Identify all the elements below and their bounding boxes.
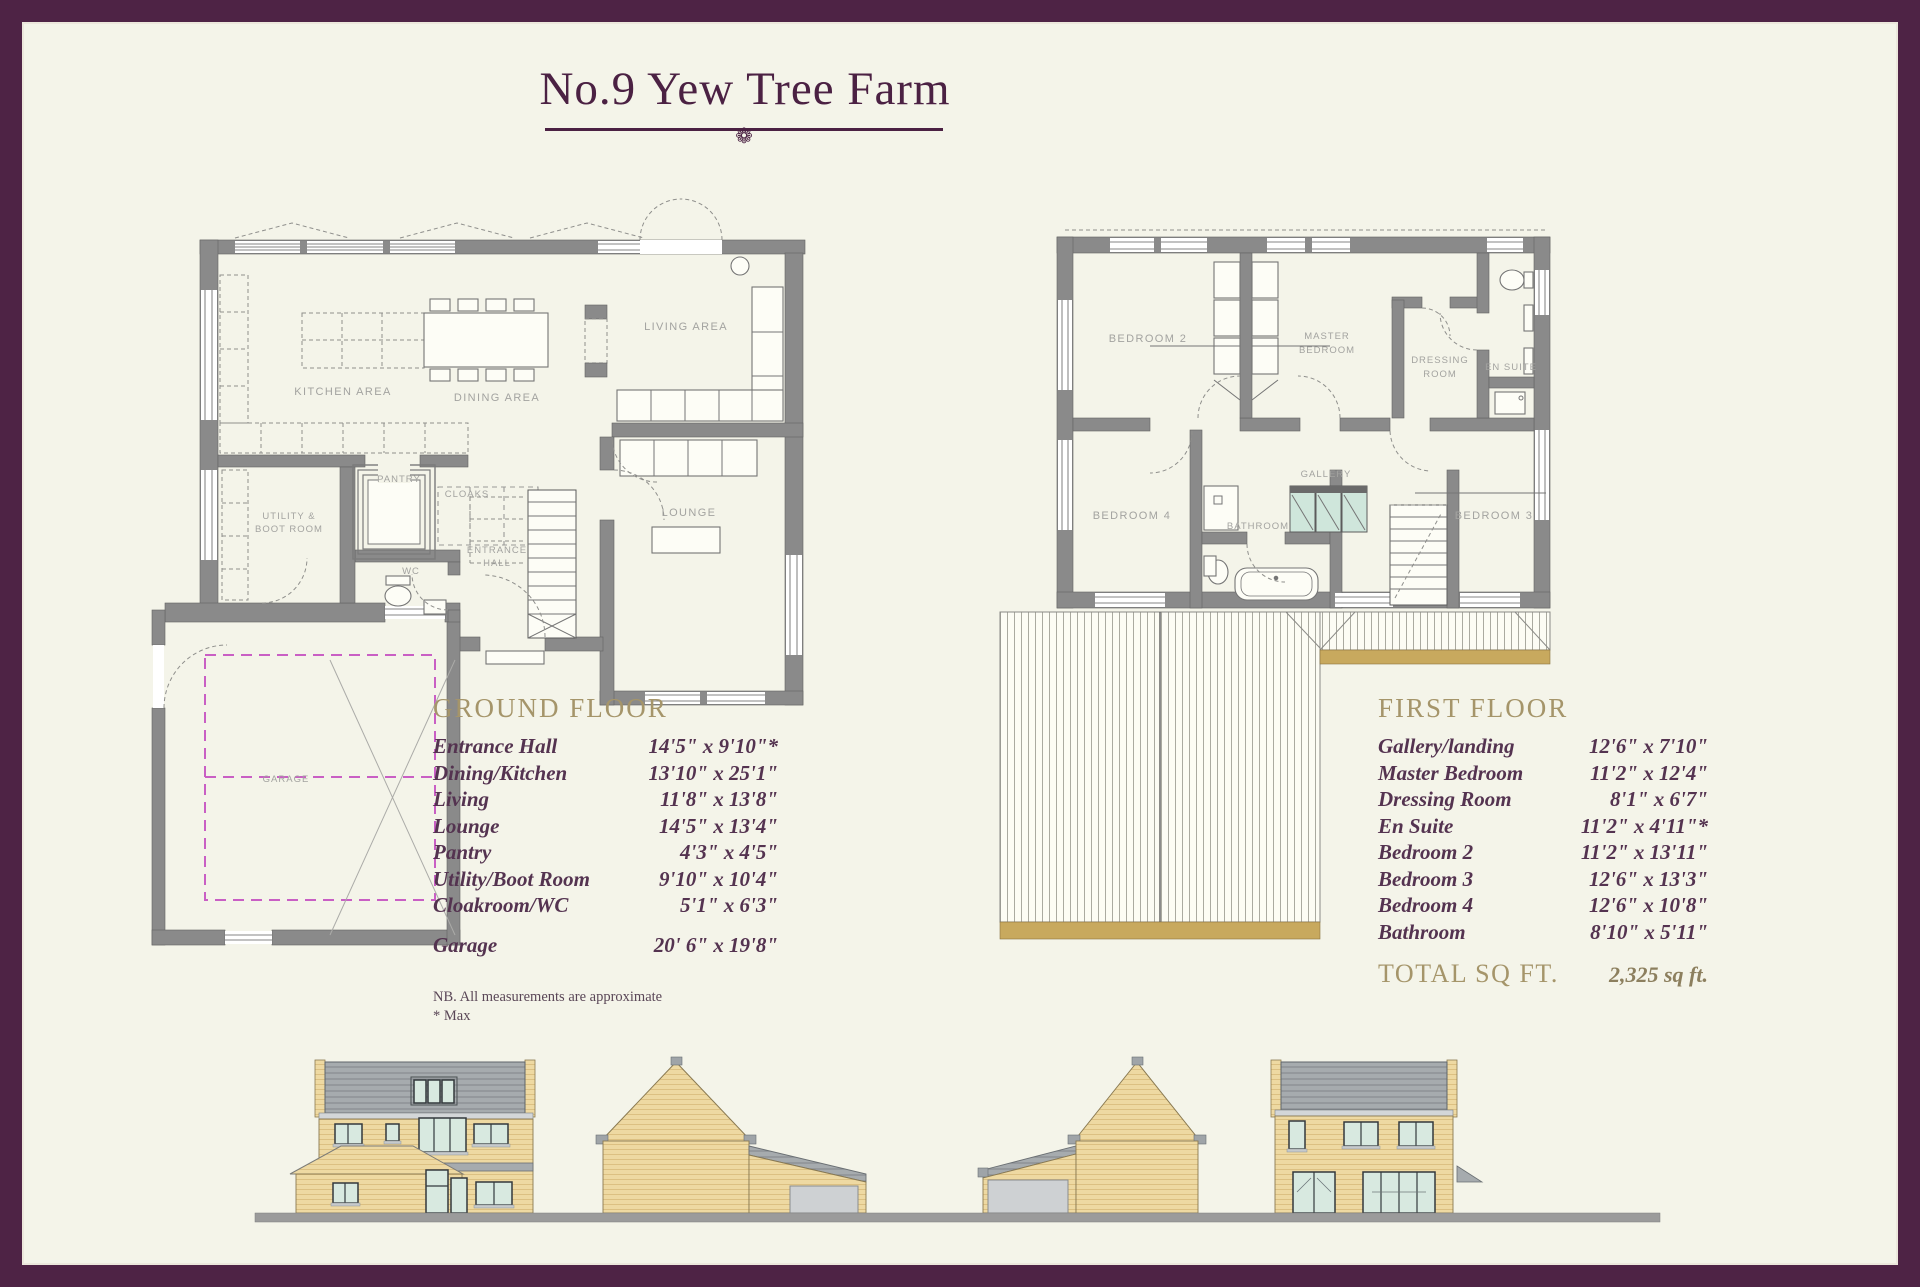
label-bedroom2: BEDROOM 2 xyxy=(1109,333,1188,345)
ground-line xyxy=(255,1213,1660,1222)
ground-floor-heading: GROUND FLOOR xyxy=(433,693,778,724)
first-walls xyxy=(1057,237,1550,608)
garage-row: Garage20' 6" x 19'8" xyxy=(433,932,778,959)
label-garage: GARAGE xyxy=(263,774,310,785)
room-row: Bedroom 211'2" x 13'11" xyxy=(1378,839,1708,866)
label-dressing-room: DRESSING xyxy=(1411,355,1469,366)
label-en-suite: EN SUITE xyxy=(1485,362,1537,373)
label-kitchen-area: KITCHEN AREA xyxy=(294,386,392,398)
bathroom-fixtures xyxy=(1204,544,1318,600)
ground-floor-list: GROUND FLOOR Entrance Hall14'5" x 9'10"*… xyxy=(433,693,778,1026)
svg-text:BEDROOM: BEDROOM xyxy=(1299,345,1355,356)
label-bathroom: BATHROOM xyxy=(1227,521,1289,532)
room-row: Entrance Hall14'5" x 9'10"* xyxy=(433,733,778,760)
kitchen-island xyxy=(302,313,424,368)
room-row: Bedroom 312'6" x 13'3" xyxy=(1378,866,1708,893)
label-lounge: LOUNGE xyxy=(662,507,717,519)
room-row: Utility/Boot Room9'10" x 10'4" xyxy=(433,866,778,893)
room-row: Gallery/landing12'6" x 7'10" xyxy=(1378,733,1708,760)
media-unit xyxy=(585,305,607,377)
lounge-furniture xyxy=(620,440,757,553)
front-step xyxy=(486,651,544,664)
elevation-front xyxy=(290,1060,535,1213)
first-floor-list: FIRST FLOOR Gallery/landing12'6" x 7'10"… xyxy=(1378,693,1708,989)
room-row: En Suite11'2" x 4'11"* xyxy=(1378,813,1708,840)
total-sqft-label: TOTAL SQ FT. xyxy=(1378,959,1559,989)
note-approximate: NB. All measurements are approximate xyxy=(433,988,778,1007)
page-title: No.9 Yew Tree Farm xyxy=(345,62,1145,116)
first-floor-heading: FIRST FLOOR xyxy=(1378,693,1708,724)
note-max: * Max xyxy=(433,1007,778,1026)
elevation-side-right xyxy=(978,1057,1206,1213)
svg-text:HALL: HALL xyxy=(483,558,511,569)
roof-overhang-dashes xyxy=(235,223,644,238)
room-row: Pantry4'3" x 4'5" xyxy=(433,839,778,866)
label-bedroom4: BEDROOM 4 xyxy=(1093,510,1172,522)
svg-text:ROOM: ROOM xyxy=(1423,369,1457,380)
flower-ornament-icon: ❁ xyxy=(712,124,776,149)
utility-room xyxy=(222,470,307,603)
room-row: Dining/Kitchen13'10" x 25'1" xyxy=(433,760,778,787)
label-bedroom3: BEDROOM 3 xyxy=(1455,510,1534,522)
room-row: Bathroom8'10" x 5'11" xyxy=(1378,919,1708,946)
title-block: No.9 Yew Tree Farm xyxy=(345,62,1145,116)
label-cloaks: CLOAKS xyxy=(445,489,490,500)
room-row: Master Bedroom11'2" x 12'4" xyxy=(1378,760,1708,787)
label-utility: UTILITY & xyxy=(262,511,315,522)
elevations xyxy=(200,1040,1470,1235)
measurement-notes: NB. All measurements are approximate * M… xyxy=(433,988,778,1026)
label-living-area: LIVING AREA xyxy=(644,321,728,333)
label-pantry: PANTRY xyxy=(377,474,421,485)
label-entrance-hall: ENTRANCE xyxy=(467,545,527,556)
elevation-rear xyxy=(1271,1060,1482,1213)
total-sqft-row: TOTAL SQ FT. 2,325 sq ft. xyxy=(1378,959,1708,989)
label-gallery: GALLERY xyxy=(1301,469,1352,480)
room-row: Bedroom 412'6" x 10'8" xyxy=(1378,892,1708,919)
dining-table xyxy=(424,299,548,381)
svg-text:BOOT ROOM: BOOT ROOM xyxy=(255,524,323,535)
label-wc: WC xyxy=(402,566,420,577)
room-row: Living11'8" x 13'8" xyxy=(433,786,778,813)
label-dining-area: DINING AREA xyxy=(454,392,540,404)
total-sqft-value: 2,325 sq ft. xyxy=(1609,962,1708,988)
living-sofa xyxy=(617,257,783,421)
room-row: Cloakroom/WC5'1" x 6'3" xyxy=(433,892,778,919)
room-row: Lounge14'5" x 13'4" xyxy=(433,813,778,840)
first-stairs xyxy=(1390,505,1447,605)
label-master-bedroom: MASTER xyxy=(1304,331,1350,342)
elevation-side-left xyxy=(596,1057,866,1213)
room-row: Dressing Room8'1" x 6'7" xyxy=(1378,786,1708,813)
garage-markings xyxy=(205,655,455,935)
